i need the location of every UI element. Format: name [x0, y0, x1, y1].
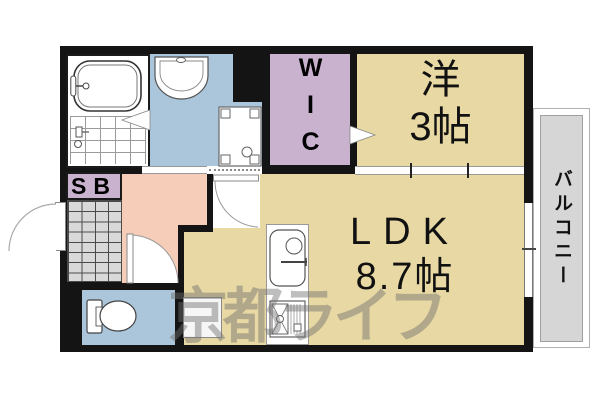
bathtub-fixture — [70, 58, 144, 114]
shoe-box-label: SB — [71, 173, 117, 200]
sliding-partition — [355, 166, 524, 175]
balcony-window — [524, 203, 533, 297]
accordion-opening — [207, 166, 262, 174]
washroom-opening — [142, 166, 207, 174]
room-balcony: バルコニー — [540, 115, 583, 342]
balcony-label: バルコニー — [548, 169, 575, 289]
floor-plan: バルコニー WIC SB — [0, 0, 600, 400]
washbasin-fixture — [152, 55, 212, 105]
toilet-fixture — [85, 296, 137, 338]
door-swing-area — [213, 174, 260, 228]
hallway-upper — [122, 174, 207, 231]
ldk-label: LDK 8.7帖 — [295, 210, 515, 300]
ldk-size: 8.7帖 — [295, 255, 515, 300]
western-room-label: 洋 3帖 — [357, 57, 524, 151]
washing-machine-pan-fixture — [218, 106, 262, 167]
entrance-tile-floor — [67, 200, 122, 282]
shoe-box: SB — [66, 172, 122, 200]
room-wic: WIC — [270, 54, 350, 165]
ldk-name: LDK — [295, 210, 515, 255]
partition-tick — [467, 163, 469, 178]
western-room-name: 洋 — [357, 57, 524, 104]
dotted-line — [209, 169, 260, 171]
entry-door-arc — [4, 198, 62, 256]
wall-notch — [233, 54, 262, 102]
partition-tick — [410, 163, 412, 178]
shower-fixture — [72, 124, 92, 152]
wic-label: WIC — [296, 54, 325, 165]
western-room-size: 3帖 — [357, 104, 524, 151]
washroom-door-arc — [213, 174, 260, 228]
window-tick — [522, 248, 536, 250]
